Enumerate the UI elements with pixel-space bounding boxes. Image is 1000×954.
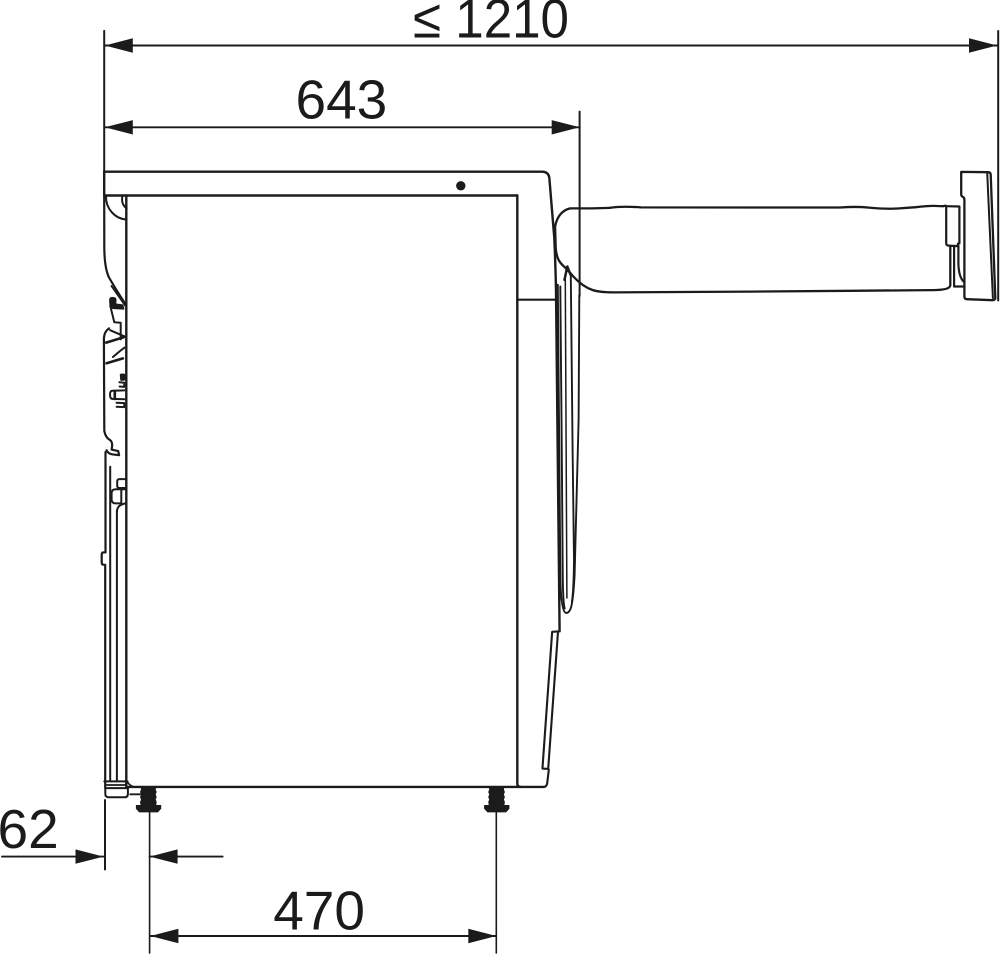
svg-text:62: 62: [0, 798, 59, 860]
svg-text:≤ 1210: ≤ 1210: [413, 0, 569, 50]
svg-text:470: 470: [273, 879, 365, 941]
svg-text:643: 643: [296, 69, 388, 131]
